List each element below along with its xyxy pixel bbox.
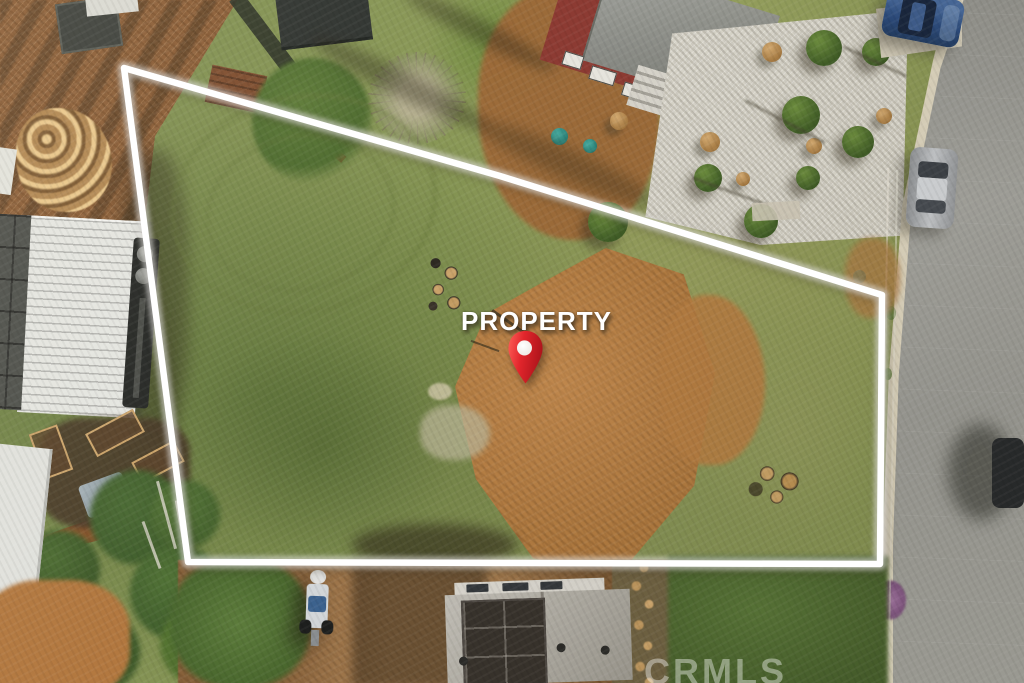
location-pin-icon — [505, 327, 546, 388]
aerial-photo: PROPERTY CRMLS — [0, 0, 1024, 683]
mls-watermark: CRMLS — [644, 651, 787, 683]
